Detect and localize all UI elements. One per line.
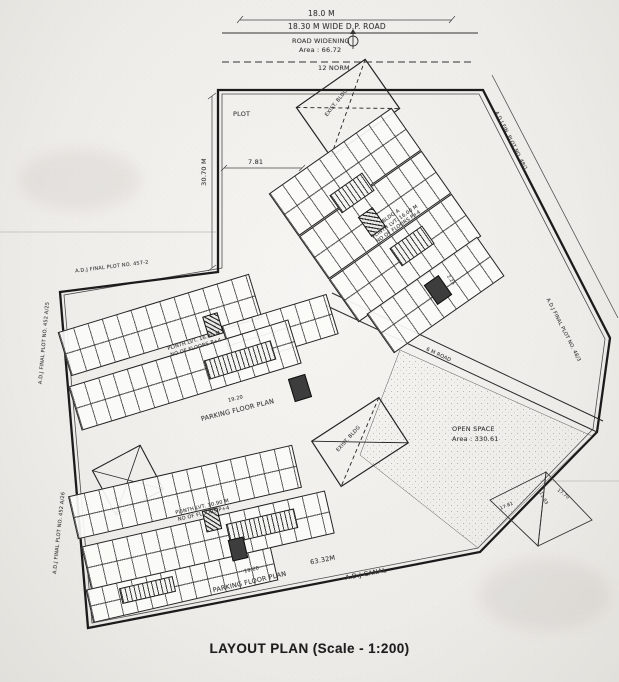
- offset-dimension-7-81: 7.81: [248, 158, 263, 166]
- dp-road-label: 18.30 M WIDE D.P. ROAD: [288, 22, 386, 31]
- top-road-dimension: 18.0 M: [308, 9, 335, 18]
- open-space-label: OPEN SPACE: [452, 425, 495, 433]
- sheet-title: LAYOUT PLAN (Scale - 1:200): [0, 641, 619, 656]
- plot-west-dimension: 30.70 M: [200, 158, 208, 186]
- layout-plan-sheet: 18.0 M 18.30 M WIDE D.P. ROAD ROAD WIDEN…: [0, 0, 619, 682]
- road-widening-label: ROAD WIDENING: [292, 37, 350, 45]
- setback-line-label: 12 NORM: [318, 64, 350, 72]
- plot-label: PLOT: [233, 110, 250, 118]
- open-space-area-label: Area : 330.61: [452, 435, 499, 443]
- road-widening-area: Area : 66.72: [299, 46, 341, 54]
